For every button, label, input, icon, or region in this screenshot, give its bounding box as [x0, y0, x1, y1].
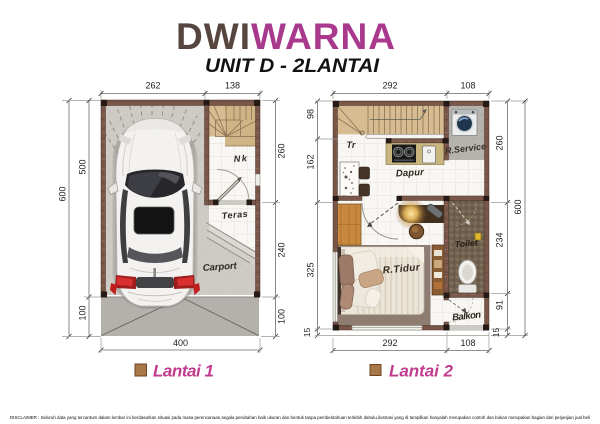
- svg-text:400: 400: [173, 338, 188, 348]
- svg-text:108: 108: [460, 81, 475, 91]
- svg-text:292: 292: [382, 81, 397, 91]
- svg-text:260: 260: [277, 143, 287, 158]
- svg-text:DWIWARNA: DWIWARNA: [176, 16, 396, 57]
- svg-text:600: 600: [58, 186, 68, 201]
- svg-text:325: 325: [306, 262, 316, 277]
- svg-text:DISCLAIMER : Seluruh data yang: DISCLAIMER : Seluruh data yang tercantum…: [10, 415, 590, 421]
- svg-text:108: 108: [460, 338, 475, 348]
- svg-text:15: 15: [302, 328, 312, 338]
- svg-text:UNIT D - 2LANTAI: UNIT D - 2LANTAI: [205, 55, 380, 77]
- svg-text:Lantai 1: Lantai 1: [153, 362, 214, 381]
- svg-text:Toilet: Toilet: [454, 237, 479, 249]
- svg-text:292: 292: [382, 338, 397, 348]
- svg-text:100: 100: [78, 305, 88, 320]
- svg-text:260: 260: [495, 135, 505, 150]
- svg-text:Lantai 2: Lantai 2: [389, 362, 454, 381]
- svg-text:138: 138: [225, 81, 240, 91]
- svg-text:500: 500: [78, 159, 88, 174]
- svg-text:Tr: Tr: [347, 140, 356, 150]
- svg-text:91: 91: [495, 300, 505, 310]
- svg-text:262: 262: [145, 81, 160, 91]
- svg-text:98: 98: [306, 109, 316, 119]
- svg-text:240: 240: [277, 242, 287, 257]
- svg-text:600: 600: [513, 199, 523, 214]
- svg-text:Dapur: Dapur: [396, 167, 426, 180]
- svg-text:162: 162: [306, 154, 316, 169]
- svg-text:234: 234: [495, 232, 505, 247]
- svg-text:100: 100: [277, 309, 287, 324]
- svg-text:15: 15: [491, 328, 501, 338]
